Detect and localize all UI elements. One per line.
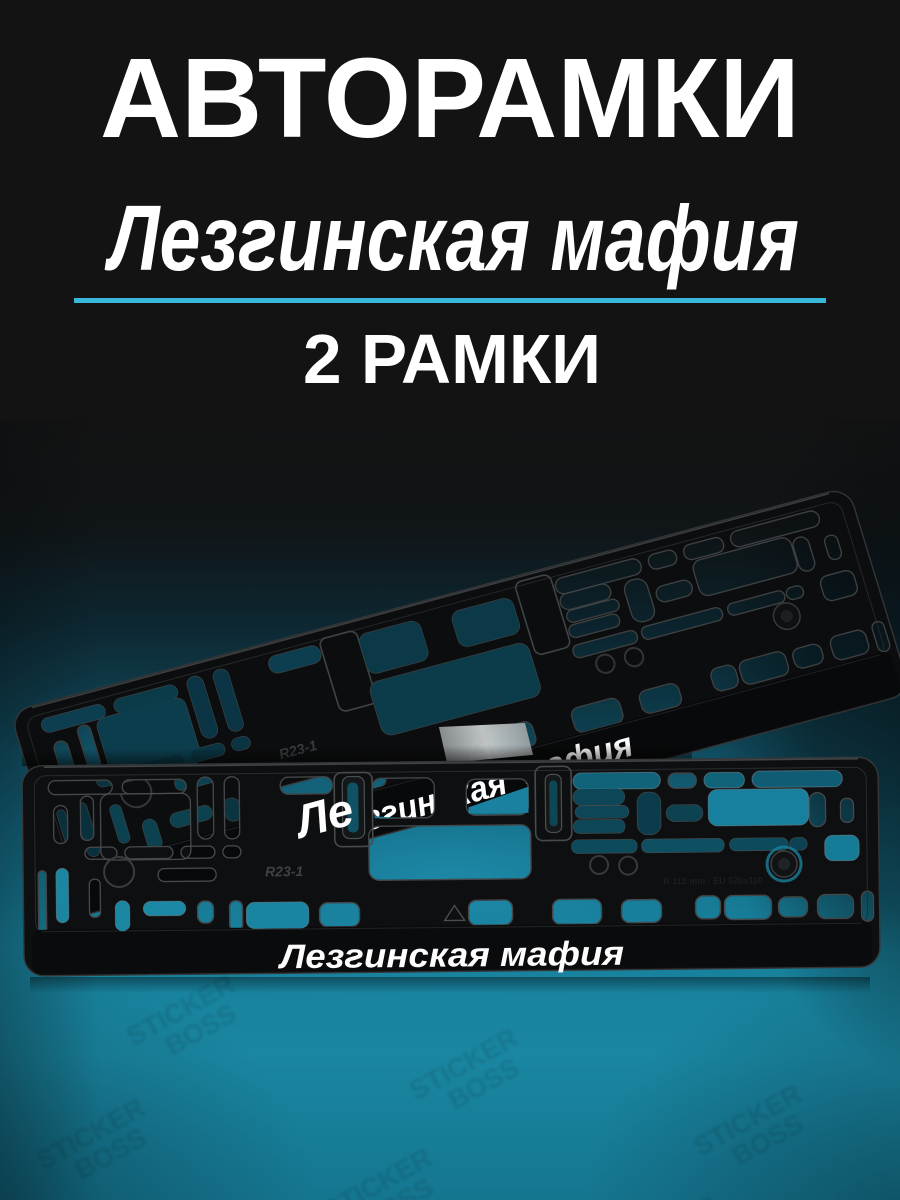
svg-text:Лезгинская мафия: Лезгинская мафия [277,935,625,977]
svg-text:АВТОРАМКИ: АВТОРАМКИ [100,35,800,161]
svg-text:Лезгинская мафия: Лезгинская мафия [104,186,799,290]
svg-text:2 РАМКИ: 2 РАМКИ [303,320,601,398]
svg-text:R 112 mm · EU 520x110: R 112 mm · EU 520x110 [663,875,763,886]
